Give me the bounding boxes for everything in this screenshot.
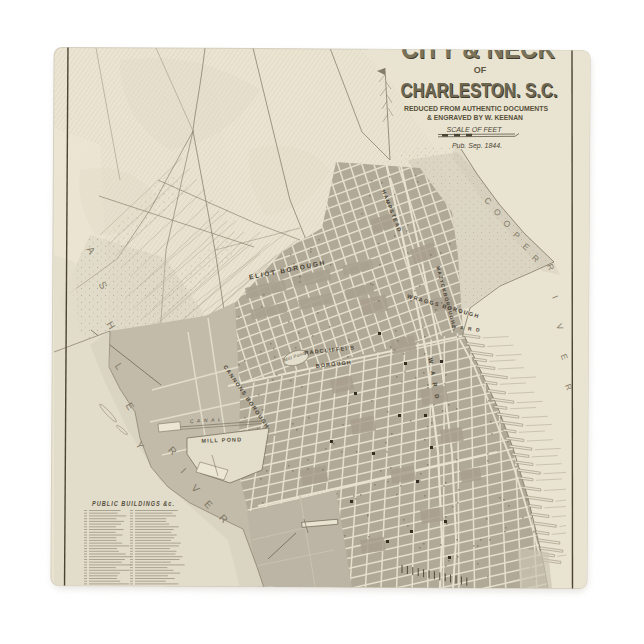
- svg-text:CHARLESTON. S.C.: CHARLESTON. S.C.: [401, 79, 558, 101]
- svg-text:SCALE OF FEET: SCALE OF FEET: [447, 126, 503, 133]
- svg-text:Pub. Sep. 1844.: Pub. Sep. 1844.: [452, 142, 502, 150]
- svg-text:& ENGRAVED BY W. KEENAN: & ENGRAVED BY W. KEENAN: [427, 113, 523, 122]
- svg-text:REDUCED FROM AUTHENTIC DOCUMEN: REDUCED FROM AUTHENTIC DOCUMENTS: [404, 104, 548, 113]
- svg-text:PUBLIC BUILDINGS &c.: PUBLIC BUILDINGS &c.: [92, 500, 175, 507]
- svg-text:OF: OF: [474, 65, 487, 75]
